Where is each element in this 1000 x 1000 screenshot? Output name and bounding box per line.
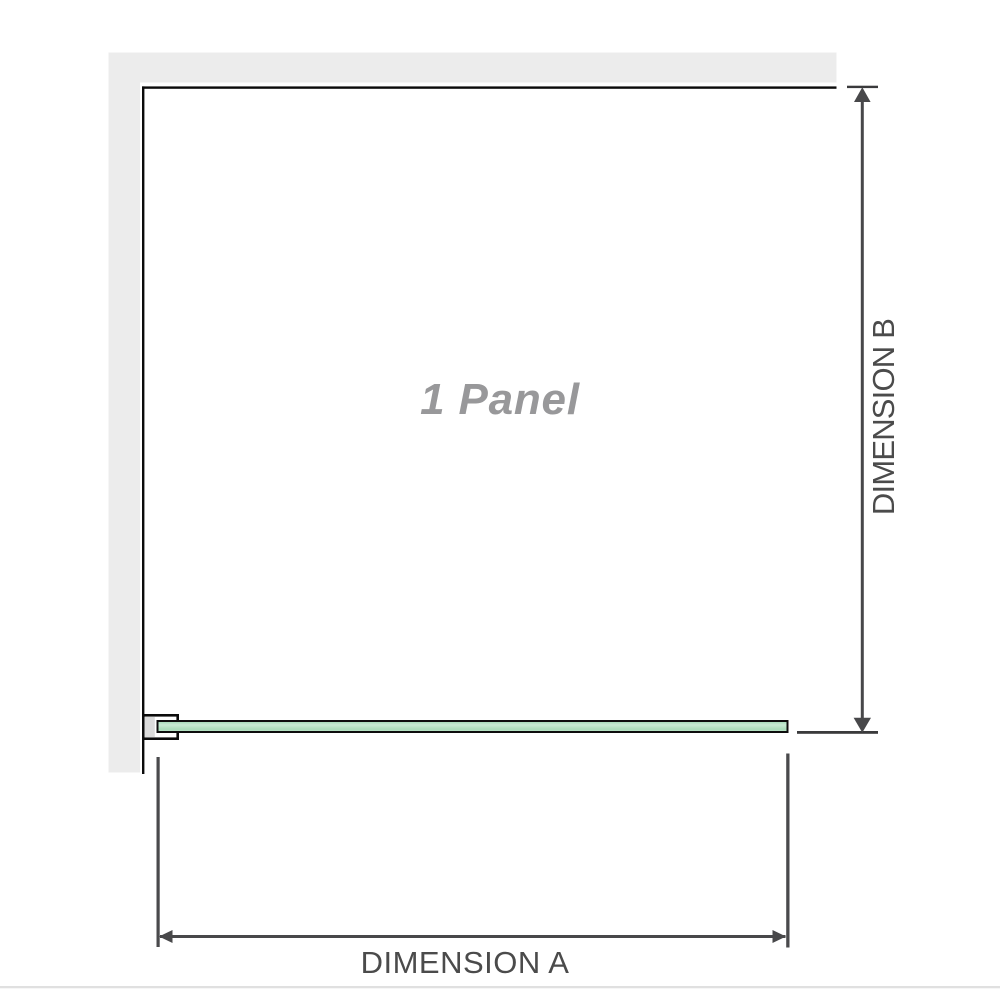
svg-text:DIMENSION B: DIMENSION B [866,319,901,515]
svg-text:1 Panel: 1 Panel [420,375,580,424]
svg-text:DIMENSION A: DIMENSION A [361,945,570,980]
